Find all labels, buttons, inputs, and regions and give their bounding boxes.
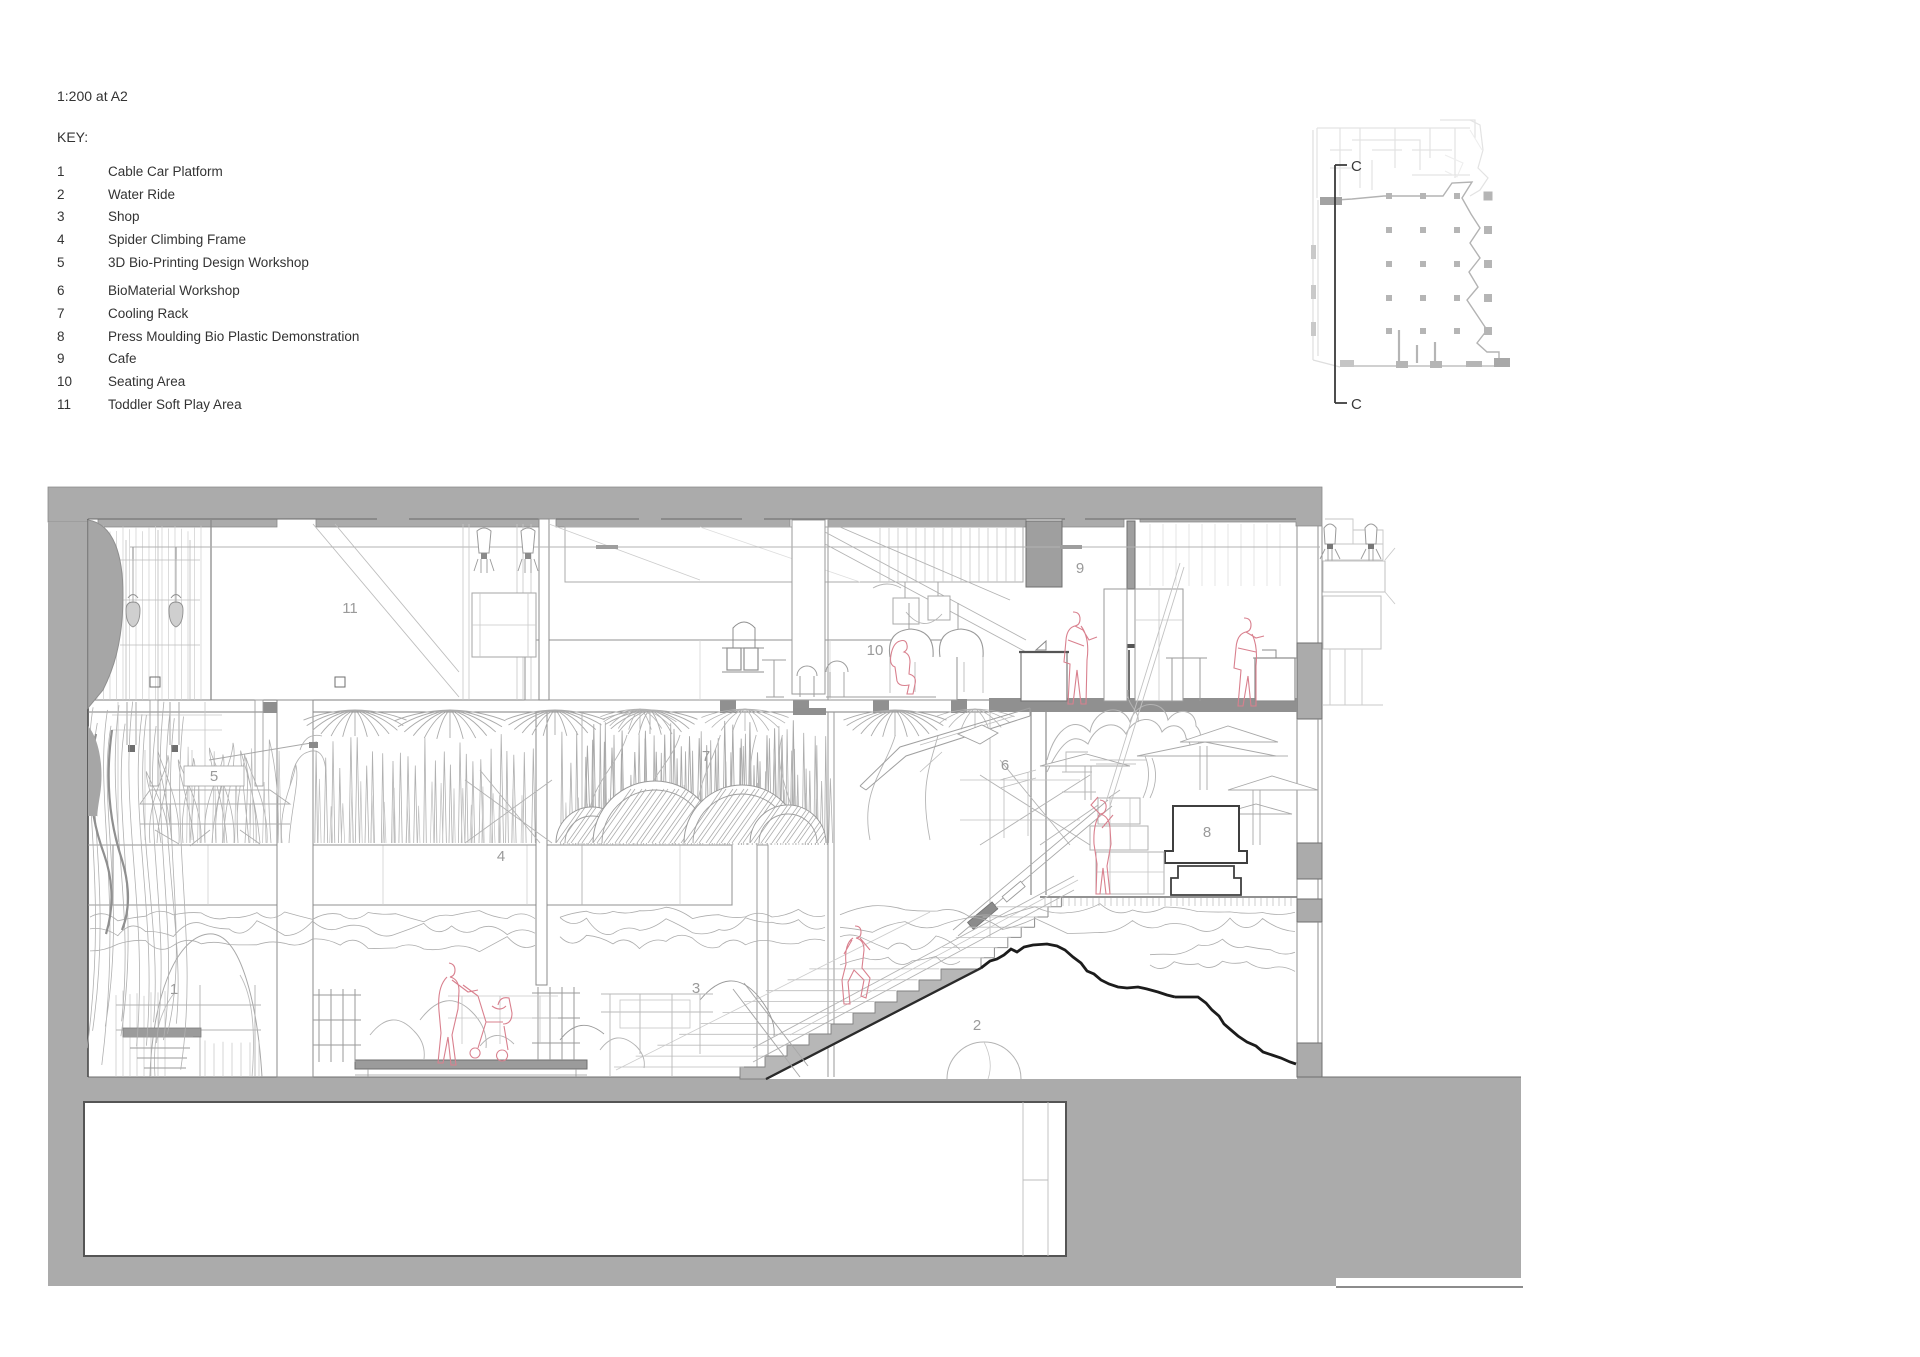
svg-text:3D Bio-Printing Design Worksho: 3D Bio-Printing Design Workshop xyxy=(108,255,309,270)
svg-text:11: 11 xyxy=(342,600,358,617)
svg-text:Seating Area: Seating Area xyxy=(108,374,186,389)
svg-text:10: 10 xyxy=(57,374,72,389)
svg-text:Spider Climbing Frame: Spider Climbing Frame xyxy=(108,232,246,247)
svg-text:1: 1 xyxy=(57,164,65,179)
svg-text:1: 1 xyxy=(170,981,178,998)
svg-text:9: 9 xyxy=(1076,560,1084,577)
svg-text:C: C xyxy=(1351,396,1362,413)
svg-text:9: 9 xyxy=(57,351,65,366)
svg-text:3: 3 xyxy=(692,980,700,997)
svg-text:8: 8 xyxy=(1203,824,1211,841)
svg-text:Toddler Soft Play Area: Toddler Soft Play Area xyxy=(108,397,242,412)
svg-text:2: 2 xyxy=(57,187,65,202)
svg-text:3: 3 xyxy=(57,209,65,224)
svg-text:Cooling Rack: Cooling Rack xyxy=(108,306,189,321)
svg-text:Press Moulding Bio Plastic Dem: Press Moulding Bio Plastic Demonstration xyxy=(108,329,359,344)
svg-text:5: 5 xyxy=(57,255,65,270)
svg-text:6: 6 xyxy=(57,283,65,298)
svg-text:7: 7 xyxy=(702,748,710,765)
svg-text:4: 4 xyxy=(497,848,505,865)
svg-text:6: 6 xyxy=(1001,757,1009,774)
svg-text:Water Ride: Water Ride xyxy=(108,187,175,202)
svg-text:8: 8 xyxy=(57,329,65,344)
svg-text:Shop: Shop xyxy=(108,209,140,224)
svg-text:10: 10 xyxy=(867,642,884,659)
svg-text:BioMaterial Workshop: BioMaterial Workshop xyxy=(108,283,240,298)
svg-text:7: 7 xyxy=(57,306,65,321)
svg-text:4: 4 xyxy=(57,232,65,247)
svg-text:C: C xyxy=(1351,158,1362,175)
svg-text:KEY:: KEY: xyxy=(57,129,88,145)
svg-text:11: 11 xyxy=(57,397,71,412)
svg-text:5: 5 xyxy=(210,768,218,785)
svg-text:2: 2 xyxy=(973,1017,981,1034)
svg-text:Cafe: Cafe xyxy=(108,351,137,366)
svg-text:Cable Car Platform: Cable Car Platform xyxy=(108,164,223,179)
svg-text:1:200 at A2: 1:200 at A2 xyxy=(57,88,128,104)
